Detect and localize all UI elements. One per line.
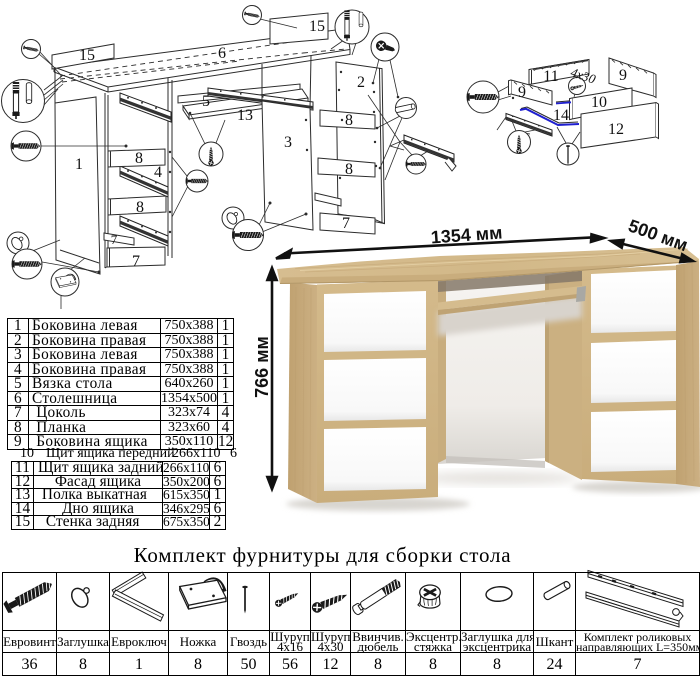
svg-text:3: 3	[284, 134, 292, 151]
svg-text:6: 6	[218, 45, 226, 62]
svg-text:7: 7	[342, 215, 350, 232]
svg-text:15: 15	[309, 18, 325, 35]
svg-text:8: 8	[136, 199, 144, 216]
svg-text:14: 14	[553, 107, 569, 124]
svg-text:7: 7	[111, 232, 118, 247]
svg-text:2: 2	[357, 74, 365, 91]
svg-text:7: 7	[132, 253, 140, 270]
svg-text:10: 10	[591, 94, 607, 111]
svg-text:4: 4	[154, 164, 162, 181]
svg-text:15: 15	[79, 47, 95, 64]
svg-text:13: 13	[237, 107, 253, 124]
svg-text:12: 12	[608, 121, 624, 138]
svg-text:9: 9	[518, 84, 526, 101]
svg-text:766 мм: 766 мм	[252, 336, 272, 398]
svg-text:11: 11	[543, 68, 558, 85]
svg-text:5: 5	[202, 93, 210, 110]
svg-text:8: 8	[345, 112, 353, 129]
svg-text:8: 8	[135, 150, 143, 167]
svg-text:1: 1	[75, 156, 83, 173]
svg-text:9: 9	[619, 67, 627, 84]
svg-text:8: 8	[345, 161, 353, 178]
